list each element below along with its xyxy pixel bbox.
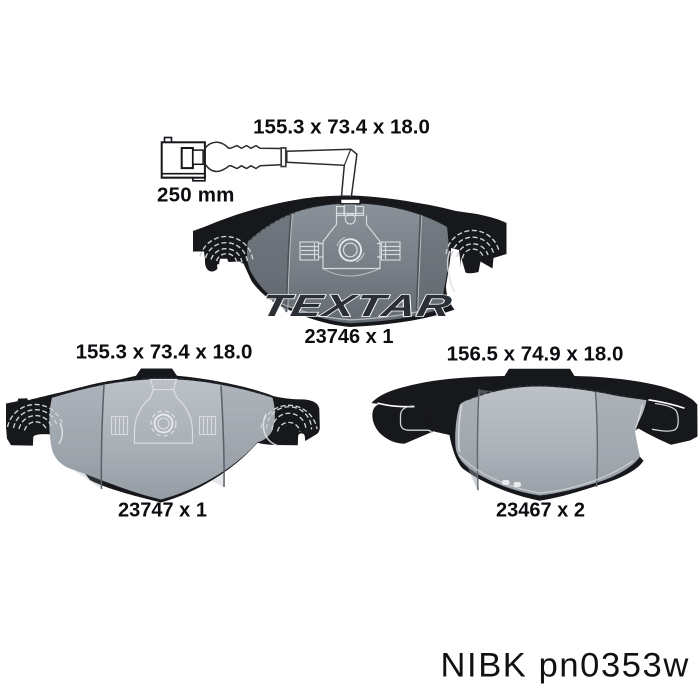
svg-text:NIBK pn0353w: NIBK pn0353w (441, 647, 690, 685)
svg-text:23467 x 2: 23467 x 2 (496, 500, 585, 522)
svg-text:23747 x 1: 23747 x 1 (118, 500, 207, 522)
svg-text:TEXTAR: TEXTAR (258, 289, 456, 323)
svg-text:23746 x 1: 23746 x 1 (305, 326, 394, 348)
svg-text:155.3 x 73.4 x 18.0: 155.3 x 73.4 x 18.0 (253, 116, 430, 139)
svg-text:155.3 x 73.4 x 18.0: 155.3 x 73.4 x 18.0 (76, 341, 253, 364)
svg-text:250 mm: 250 mm (157, 184, 235, 207)
svg-text:156.5 x 74.9 x 18.0: 156.5 x 74.9 x 18.0 (447, 343, 624, 366)
